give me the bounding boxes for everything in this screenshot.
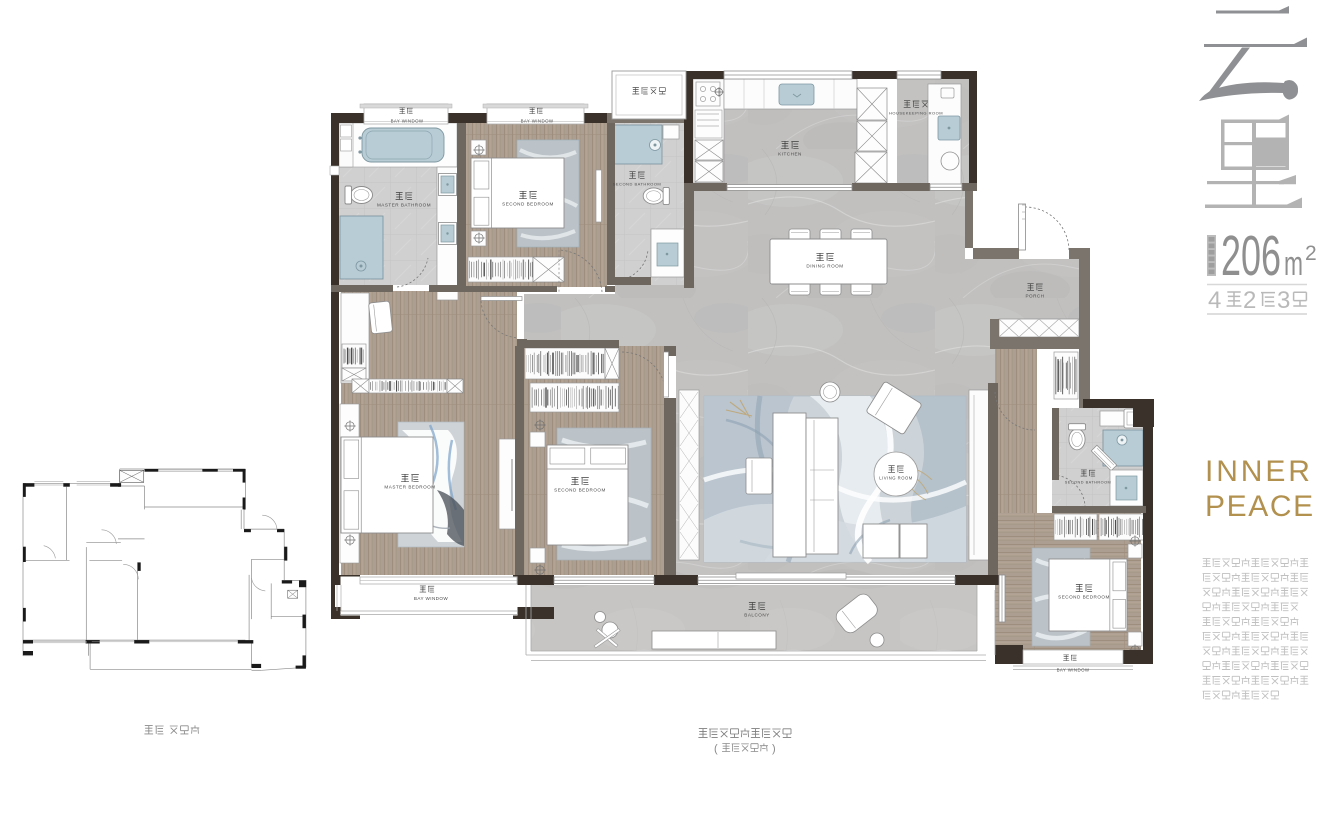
svg-text:MASTER BATHROOM: MASTER BATHROOM [377,203,431,208]
svg-text:2: 2 [1305,242,1317,265]
svg-text:m: m [1284,245,1303,283]
svg-text:SECOND BATHROOM: SECOND BATHROOM [1065,481,1111,485]
svg-text:206: 206 [1221,224,1281,288]
svg-text:BALCONY: BALCONY [744,613,769,618]
svg-text:SECOND BEDROOM: SECOND BEDROOM [502,202,554,207]
svg-text:BAY WINDOW: BAY WINDOW [1057,668,1090,673]
svg-text:LIVING ROOM: LIVING ROOM [879,476,912,481]
svg-text:INNER: INNER [1205,455,1313,488]
svg-text:BAY WINDOW: BAY WINDOW [414,596,448,601]
svg-text:KITCHEN: KITCHEN [778,152,802,157]
svg-text:SECOND BEDROOM: SECOND BEDROOM [1058,595,1110,600]
svg-text:BAY WINDOW: BAY WINDOW [391,119,424,124]
svg-text:2: 2 [1243,287,1256,314]
svg-text:MASTER BEDROOM: MASTER BEDROOM [384,485,435,490]
svg-text:PORCH: PORCH [1025,294,1044,299]
svg-text:HOUSEKEEPING ROOM: HOUSEKEEPING ROOM [889,111,943,116]
svg-text:BAY WINDOW: BAY WINDOW [521,119,554,124]
svg-text:DINING ROOM: DINING ROOM [806,264,843,269]
svg-text:SECOND BATHROOM: SECOND BATHROOM [613,182,662,187]
svg-text:PEACE: PEACE [1205,490,1315,523]
svg-text:SECOND BEDROOM: SECOND BEDROOM [554,488,606,493]
svg-text:4: 4 [1208,287,1221,314]
svg-text:(: ( [714,743,718,755]
svg-text:3: 3 [1277,287,1290,314]
svg-text:): ) [772,743,776,755]
